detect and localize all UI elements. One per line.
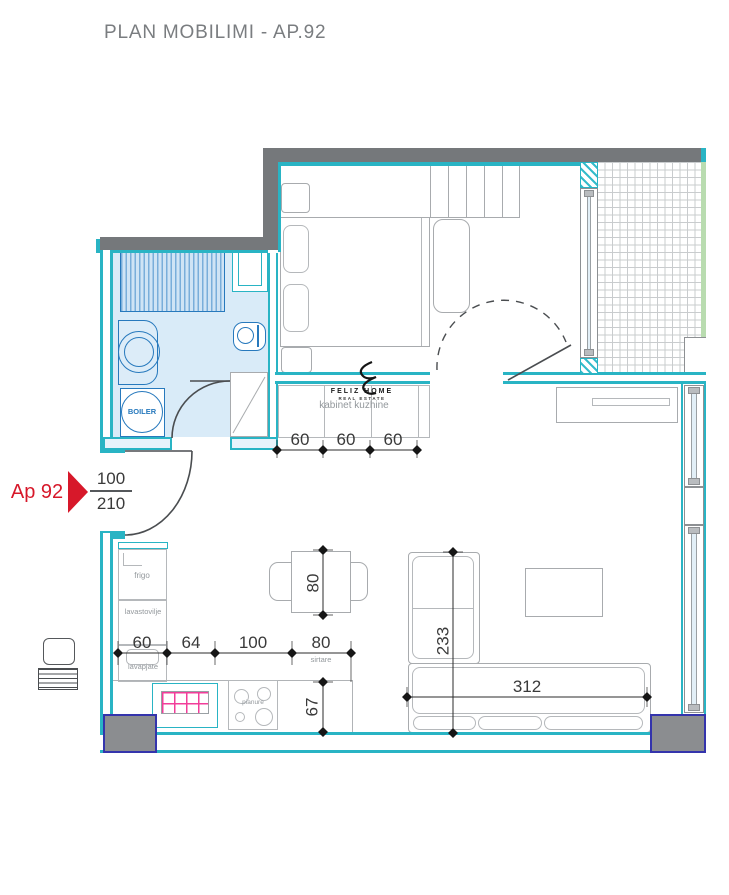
coffee-table [525,568,603,617]
logo-subtitle: REAL ESTATE [334,397,390,402]
burner [235,712,245,722]
dim-kitchen-64: 64 [171,634,211,651]
bathroom-top-liner [103,250,268,253]
apartment-marker-label: Ap 92 [6,482,68,502]
exterior-unit [43,638,75,665]
wardrobe [430,163,520,218]
dim-kitchen-80: 80 [301,634,341,651]
bedroom-top-liner [278,162,580,166]
cabinet-divider [418,386,419,437]
window-pier-box [684,487,704,525]
burner [255,708,273,726]
dim-cabinet-60: 60 [280,431,320,448]
window-pier-hatch-top [580,162,598,188]
entry-marker-arrow [68,471,88,513]
living-window-lower [684,525,704,713]
wall-left-lower [100,533,113,732]
wall-step-vertical [263,148,278,250]
dim-table-depth: 80 [305,574,322,593]
bedroom-left-liner [278,162,281,252]
toilet-bowl [237,327,254,344]
shower-tray [230,372,268,437]
pillow [283,284,309,332]
wall-top-cap [701,148,706,162]
dim-kitchen-60: 60 [122,634,162,651]
wall-top [263,148,701,162]
dim-cabinet-60: 60 [373,431,413,448]
sink-drainer-grid [161,691,209,714]
balcony-window [580,188,598,358]
dishwasher-label: lavastovilje [116,608,170,616]
window-cap [584,349,594,356]
sink-label: lavapjate [118,663,168,671]
window-cap [688,527,700,534]
dim-counter-depth: 67 [304,698,321,717]
window-cap [584,190,594,197]
shower-radiator [120,250,225,312]
kitchen-counter-top-strip [118,542,168,549]
fridge-detail [123,553,142,566]
niche-inner [238,252,262,286]
bed-fold-line [421,218,422,346]
sofa-back-cushion [413,716,476,730]
wall-bedroom-divider-left [275,372,430,384]
wall-bathroom-bottom-right [230,437,278,450]
washbasin-inner [124,337,154,367]
living-window-upper [684,385,704,487]
nightstand-bottom [281,347,312,373]
cabinet-divider [324,386,325,437]
column-bottom-left [103,714,157,753]
window-glass [587,196,591,350]
window-pier-hatch-bottom [580,358,598,374]
balcony-corner-notch [684,337,706,372]
pillow [283,225,309,273]
floor-plan: PLAN MOBILIMI - AP.92 Ap 92 100 210 BOIL… [0,0,729,895]
fridge-label: frigo [124,572,160,580]
dim-sofa-depth: 233 [435,627,452,655]
boiler-label: BOILER [121,408,163,416]
wardrobe-side-unit [433,219,470,313]
entry-door-arc [125,451,192,535]
entry-door-width: 100 [93,470,129,487]
cooktop-label: pianure [230,700,276,707]
window-glass [691,393,697,479]
dim-cabinet-60: 60 [326,431,366,448]
bathroom-niche [232,252,268,292]
window-cap [688,704,700,711]
sofa-back-cushion [544,716,643,730]
toilet-tank-line [257,325,259,347]
window-glass [691,533,697,705]
wall-step-horizontal [100,237,278,250]
wall-bathroom-right [268,253,278,447]
dim-sofa-width: 312 [507,678,547,695]
wall-bedroom-divider-right [503,372,706,384]
toilet [233,322,266,351]
wall-bottom [100,732,706,753]
tv-cabinet-slot [592,398,670,406]
nightstand-top [281,183,310,213]
wall-bathroom-bottom-left [103,437,172,450]
dim-kitchen-100: 100 [233,634,273,651]
kitchen-cabinet-label: kabinet kuzhine [294,401,414,411]
logo-name: FELIZ HOME [328,388,396,395]
entry-door-height: 210 [93,495,129,512]
drawers-label: sirtare [301,656,341,664]
sofa-back-cushion [478,716,542,730]
window-cap [688,478,700,485]
entry-fraction-line [90,490,132,492]
exterior-ac-unit [38,668,78,690]
page-title: PLAN MOBILIMI - AP.92 [104,22,326,44]
sofa-cushion-divider [413,608,473,609]
wall-left-upper [100,250,113,447]
column-bottom-right [650,714,706,753]
window-cap [688,387,700,394]
